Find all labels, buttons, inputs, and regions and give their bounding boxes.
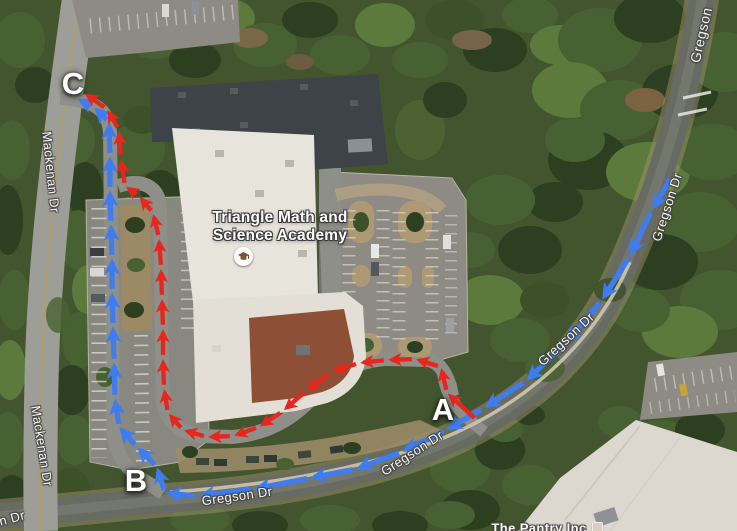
route-marker-a: A bbox=[432, 392, 454, 428]
route-marker-b: B bbox=[125, 463, 147, 499]
route-marker-c: C bbox=[62, 66, 84, 102]
school-poi-label[interactable]: Triangle Math and Science Academy bbox=[170, 209, 390, 245]
school-poi-name-line2: Science Academy bbox=[170, 227, 390, 245]
pantry-poi-label[interactable]: The Pantry Inc bbox=[491, 521, 586, 531]
school-poi-name-line1: Triangle Math and bbox=[170, 209, 390, 227]
satellite-imagery bbox=[0, 0, 737, 531]
map-viewport[interactable]: Gregson Gregson Dr Gregson Dr Gregson Dr… bbox=[0, 0, 737, 531]
graduation-cap-icon[interactable] bbox=[234, 247, 253, 266]
building-square-icon bbox=[592, 522, 603, 531]
